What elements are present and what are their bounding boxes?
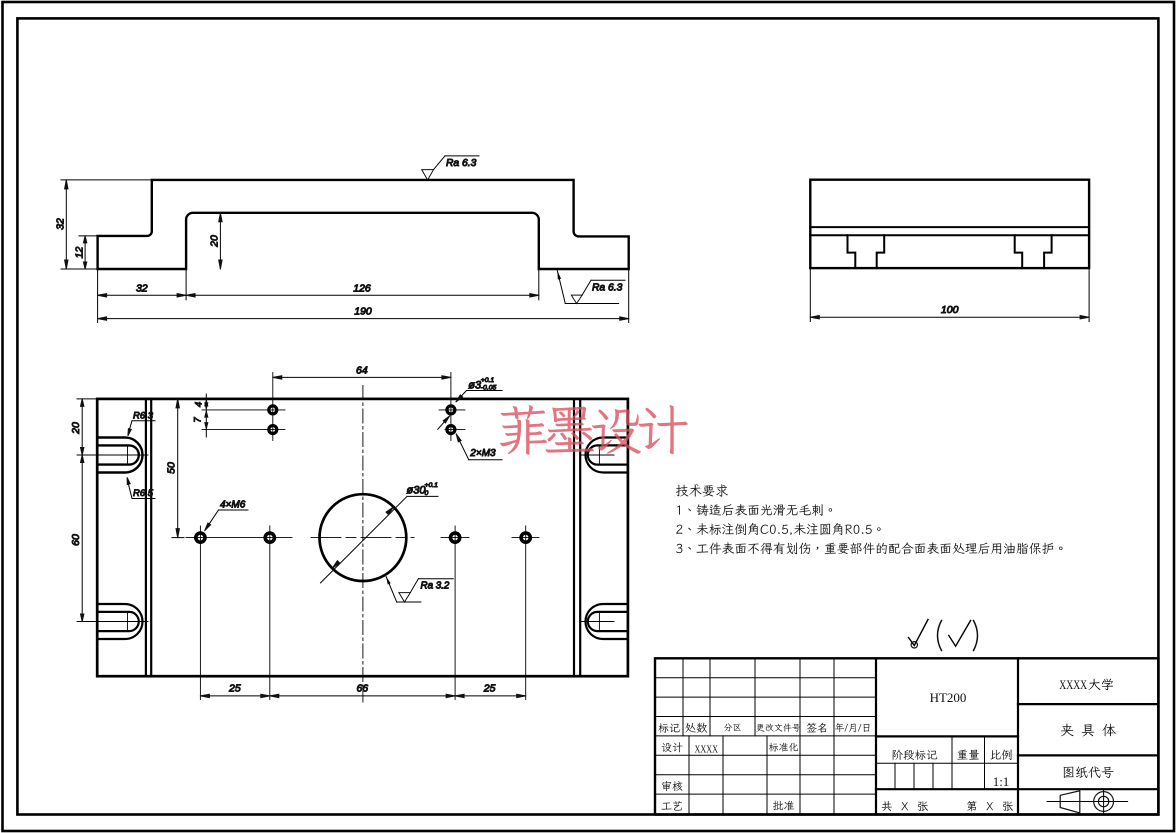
svg-text:7: 7 bbox=[193, 417, 204, 423]
svg-text:126: 126 bbox=[353, 282, 371, 294]
svg-text:12: 12 bbox=[73, 247, 85, 259]
svg-text:ø30: ø30 bbox=[407, 485, 427, 497]
svg-text:32: 32 bbox=[136, 282, 148, 294]
svg-text:-0.05: -0.05 bbox=[481, 384, 497, 391]
svg-text:R6.3: R6.3 bbox=[133, 411, 154, 422]
svg-text:20: 20 bbox=[70, 422, 82, 435]
svg-text:25: 25 bbox=[483, 682, 496, 694]
svg-text:100: 100 bbox=[941, 304, 959, 316]
svg-text:64: 64 bbox=[356, 364, 368, 376]
svg-text:0: 0 bbox=[425, 490, 429, 497]
svg-text:+0.1: +0.1 bbox=[481, 377, 495, 384]
svg-text:1:1: 1:1 bbox=[993, 774, 1010, 789]
svg-text:4×M6: 4×M6 bbox=[220, 499, 246, 510]
svg-text:+0.1: +0.1 bbox=[425, 482, 439, 489]
svg-text:XXXX: XXXX bbox=[1059, 678, 1087, 692]
svg-text:Ra 6.3: Ra 6.3 bbox=[592, 283, 623, 294]
svg-text:XXXX: XXXX bbox=[695, 743, 719, 755]
svg-text:HT200: HT200 bbox=[930, 690, 967, 705]
svg-text:60: 60 bbox=[70, 534, 82, 546]
svg-text:4: 4 bbox=[194, 402, 205, 407]
svg-text:R6.5: R6.5 bbox=[133, 488, 154, 499]
svg-text:190: 190 bbox=[354, 306, 372, 318]
svg-text:32: 32 bbox=[55, 218, 67, 230]
svg-text:50: 50 bbox=[166, 462, 178, 474]
svg-text:Ra 6.3: Ra 6.3 bbox=[446, 158, 477, 169]
svg-text:25: 25 bbox=[228, 682, 241, 694]
svg-text:20: 20 bbox=[209, 235, 221, 248]
svg-text:2×M3: 2×M3 bbox=[469, 448, 496, 459]
svg-text:Ra 3.2: Ra 3.2 bbox=[421, 581, 450, 592]
svg-text:66: 66 bbox=[356, 682, 368, 694]
